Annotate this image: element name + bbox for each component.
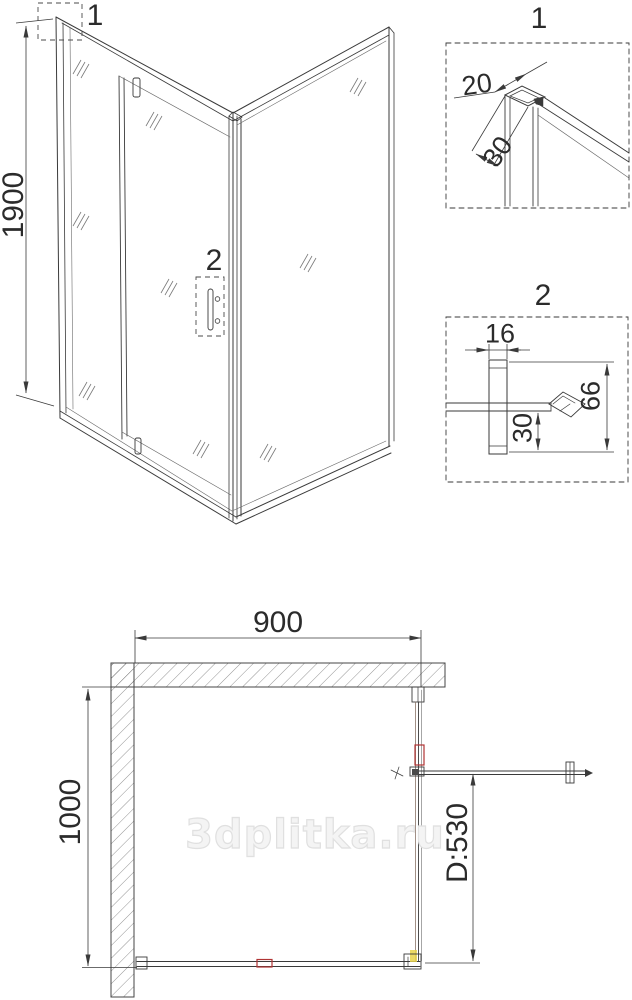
callout-boxes [38,3,224,336]
watermark-text: 3dplitka.ru [185,812,445,858]
dim-label-20: 20 [460,70,494,101]
detail-2-title: 2 [535,281,552,311]
elevation-3d-drawing [56,17,394,524]
dim-label-900: 900 [253,608,303,638]
dim-label-1000: 1000 [56,779,86,846]
dim-label-1900: 1900 [0,172,29,239]
callout-label-1: 1 [87,1,104,31]
dim-label-30-handle: 30 [510,413,537,443]
callout-label-2: 2 [206,246,223,276]
dim-label-16: 16 [485,321,515,348]
detail-1-title: 1 [531,4,548,34]
dim-label-d530: D:530 [443,803,473,883]
dim-label-66: 66 [578,381,605,411]
technical-drawing-sheet: 3dplitka.ru 1900 1 2 1 20 30 2 16 30 66 … [0,0,632,1000]
